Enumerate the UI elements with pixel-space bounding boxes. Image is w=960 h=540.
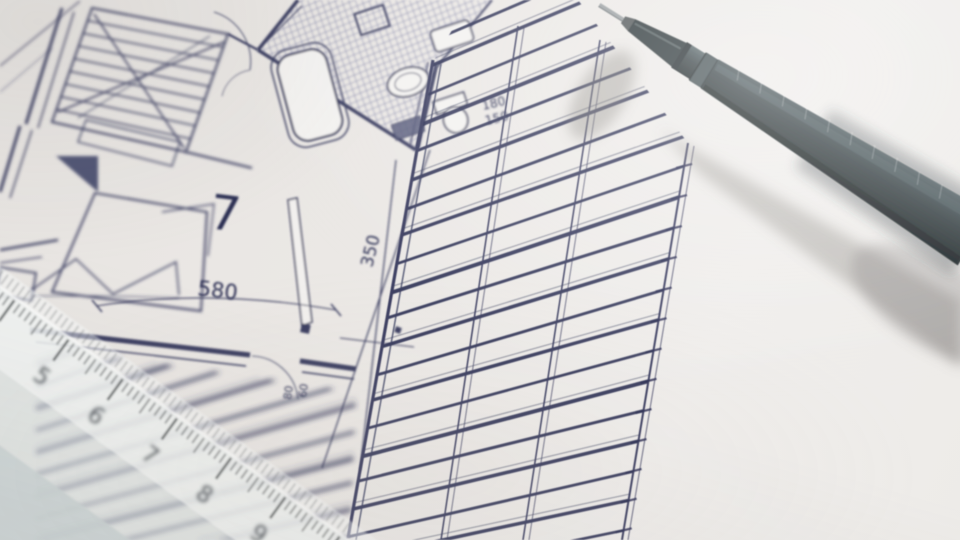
door-leaf [288,198,312,326]
blueprint-photo: 7 580 350 180 150 80 60 [0,0,960,540]
stair-tread [56,109,190,139]
tile-line [516,0,574,158]
stair-tread [79,46,214,73]
room-number-label: 7 [207,184,244,243]
stair-tread [83,33,219,60]
pen [577,0,960,275]
pen-tip [598,3,626,23]
section-marker-triangle [56,156,98,192]
tile-line [240,130,505,236]
tile-line [240,1,505,107]
deck-slat [36,0,706,256]
deck-right-edge [622,143,688,540]
stair-tread [70,71,205,99]
tile-line [495,0,553,158]
bed [52,193,207,311]
door-hinge [300,323,311,334]
dim-580-label: 580 [196,276,239,305]
tile-line [240,137,505,243]
door-swing-arc [214,12,251,70]
staircase [26,8,228,166]
dim-350-label: 350 [357,233,384,269]
tile-line [475,0,533,158]
bathtub [267,39,353,152]
stair-tread [74,59,209,87]
stair-tread [61,97,195,126]
stair-tread [65,84,200,113]
photo-stage: 7 580 350 180 150 80 60 [0,0,960,540]
dim-leader-2 [360,160,396,470]
deck-slat [36,0,706,256]
